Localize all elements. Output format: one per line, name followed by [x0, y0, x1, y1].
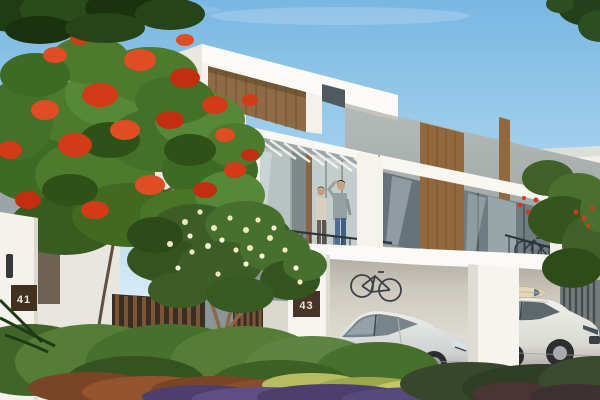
unit-41-plaque: 41 [11, 285, 37, 311]
scene-canvas: 43 [0, 0, 600, 400]
cloud [210, 7, 470, 25]
gate-handle [6, 254, 13, 278]
terrace-column-mid [357, 152, 383, 250]
unit-41-number: 41 [17, 294, 31, 306]
terrace-wood-frame [306, 152, 312, 244]
unit-43-number: 43 [299, 300, 313, 312]
wood-panel [420, 122, 464, 256]
villa-render-scene: 43 [0, 0, 600, 400]
